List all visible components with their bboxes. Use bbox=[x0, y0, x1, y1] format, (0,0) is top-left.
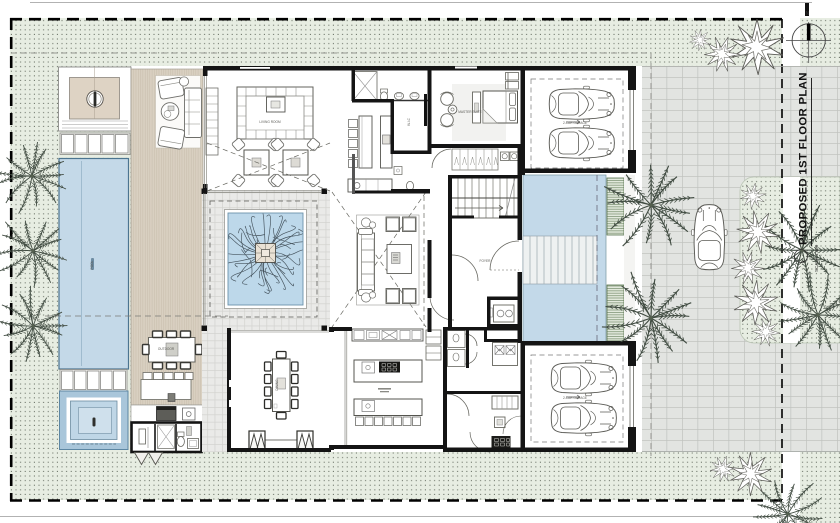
svg-text:W.I.C: W.I.C bbox=[407, 117, 411, 125]
svg-text:2-CAR GARAGE: 2-CAR GARAGE bbox=[563, 121, 587, 125]
svg-text:OUTDOOR: OUTDOOR bbox=[158, 347, 175, 351]
svg-text:LIVING ROOM: LIVING ROOM bbox=[259, 120, 281, 124]
svg-text:FOYER: FOYER bbox=[480, 259, 492, 263]
svg-text:POOL: POOL bbox=[90, 260, 94, 269]
svg-text:PROPOSED 1ST FLOOR PLAN: PROPOSED 1ST FLOOR PLAN bbox=[798, 72, 810, 245]
svg-text:MASTER SUITE: MASTER SUITE bbox=[458, 110, 482, 114]
svg-text:2-CAR GARAGE: 2-CAR GARAGE bbox=[563, 396, 587, 400]
svg-text:SCALE 1:100: SCALE 1:100 bbox=[814, 244, 819, 272]
svg-text:DINING: DINING bbox=[275, 379, 279, 391]
svg-text:N: N bbox=[806, 11, 810, 17]
